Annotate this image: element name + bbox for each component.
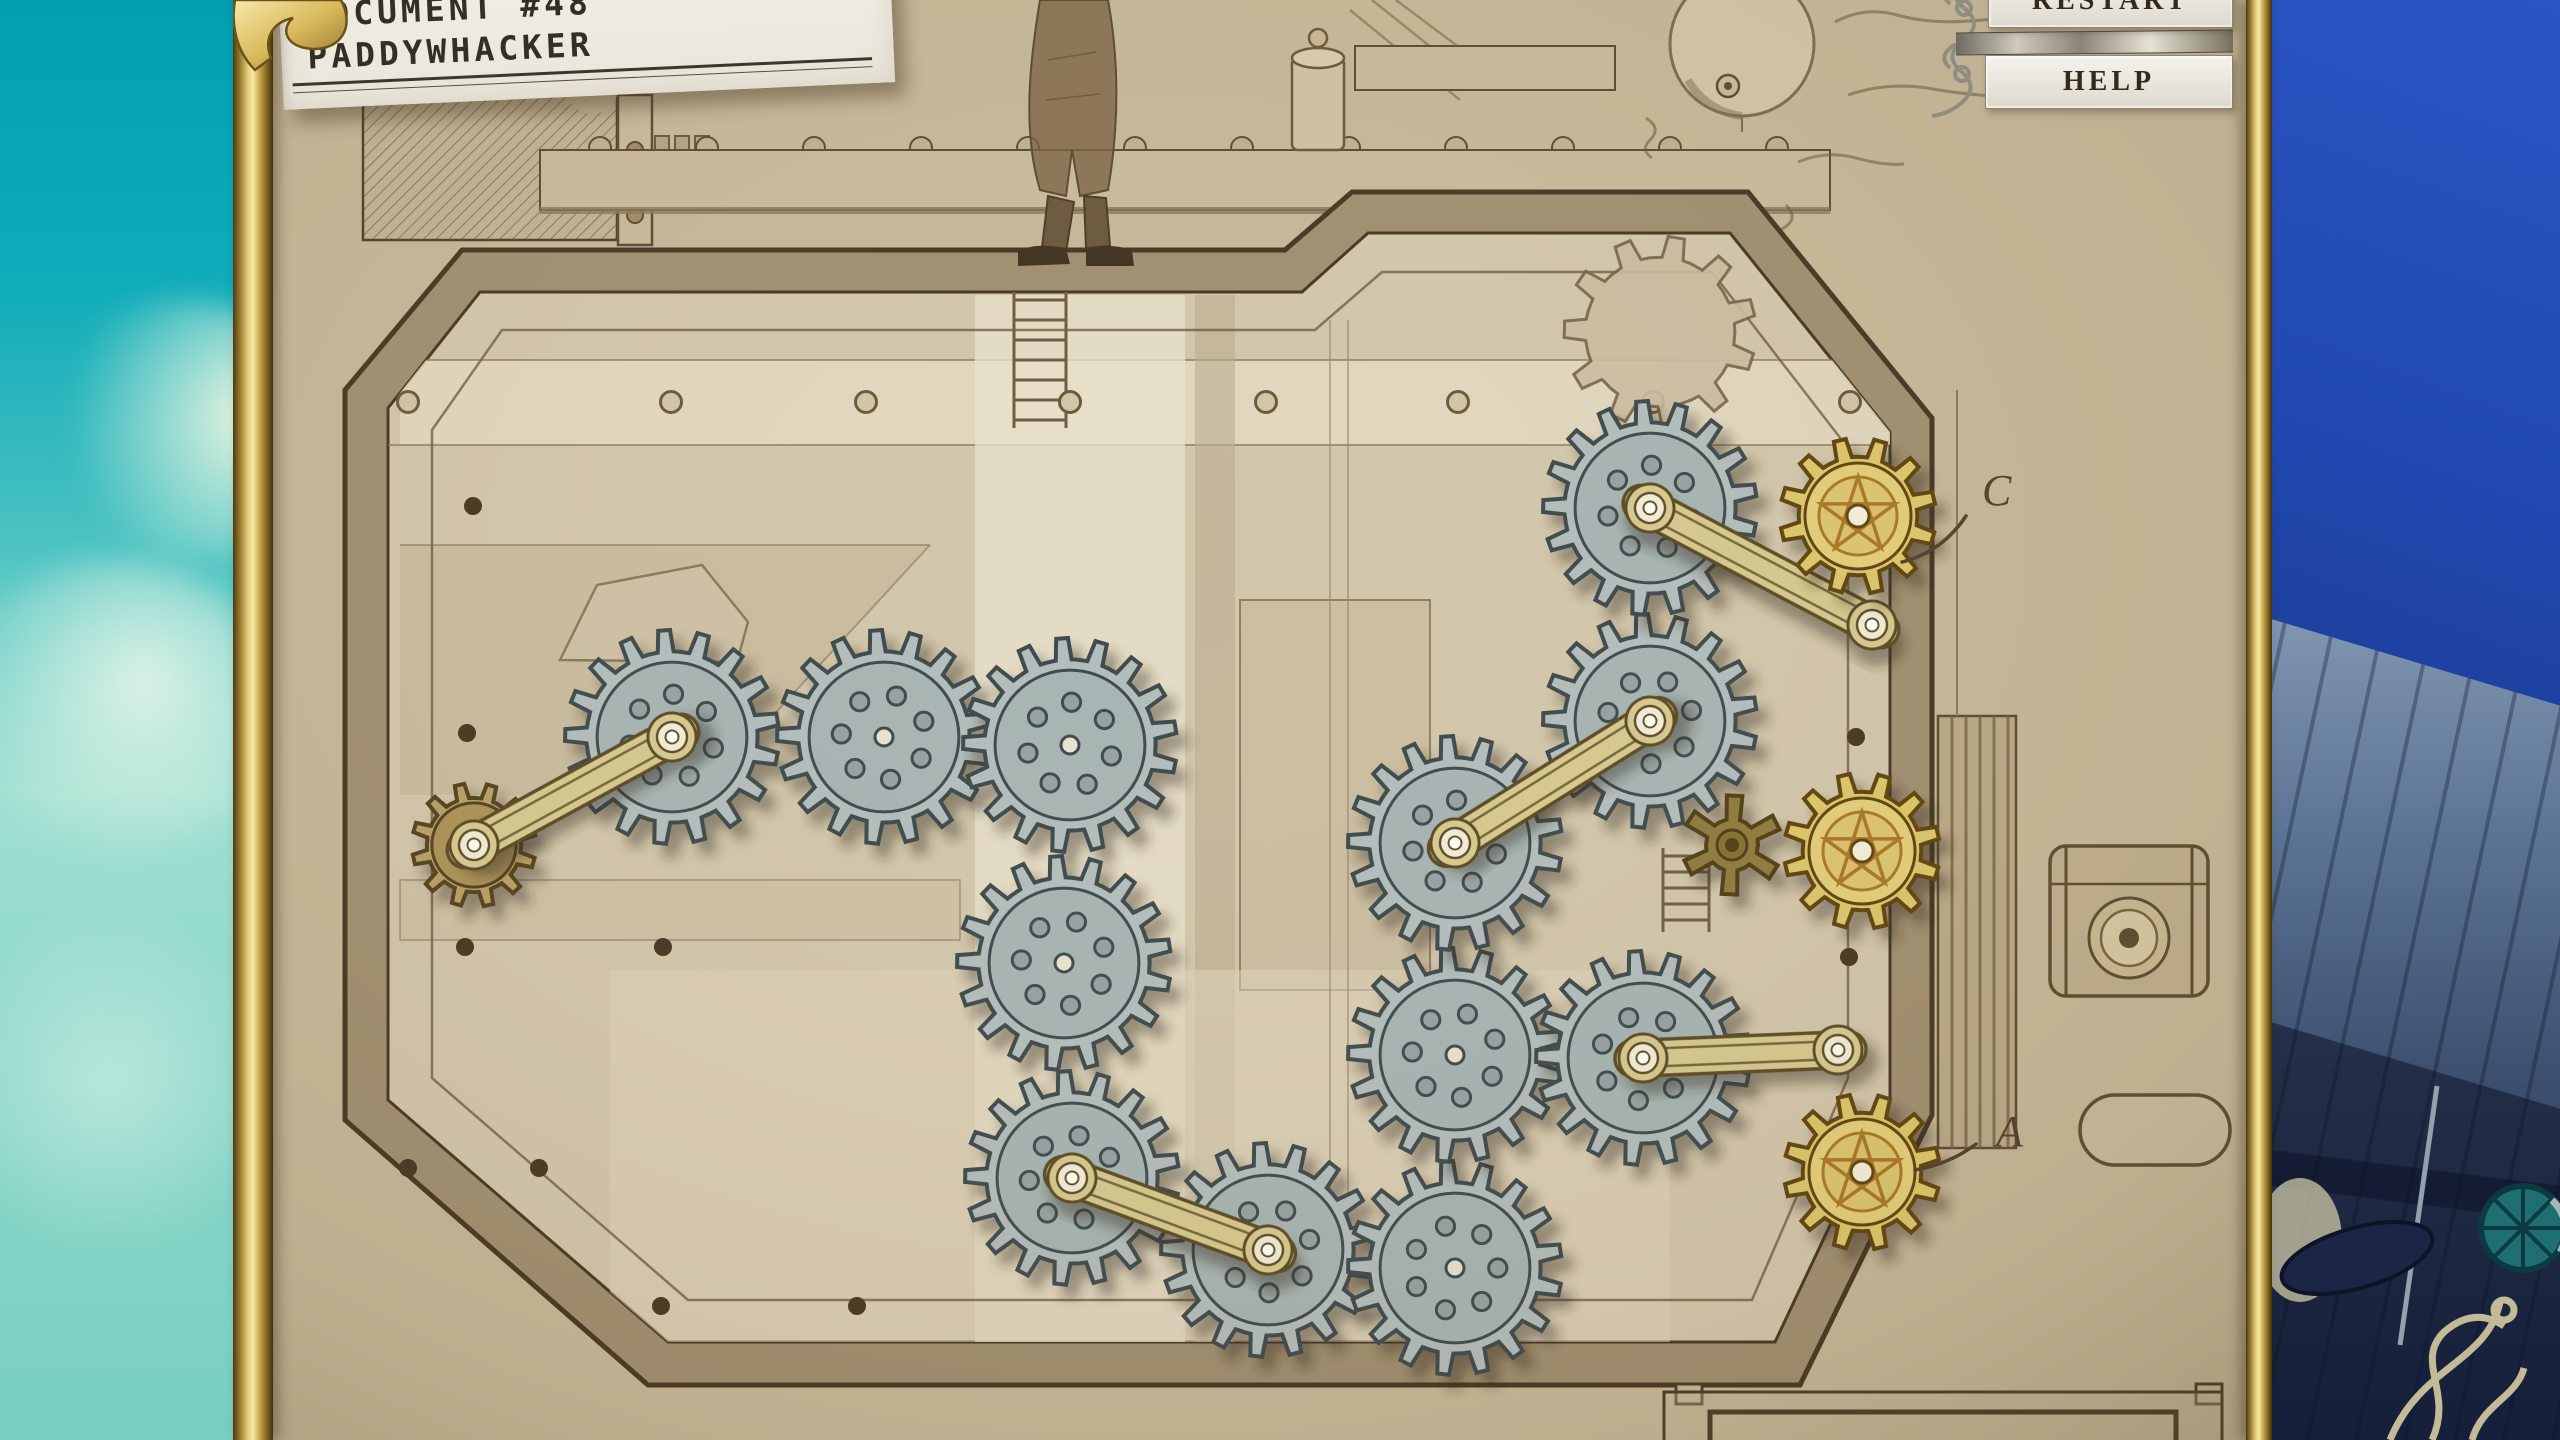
solution-tray[interactable]: [1664, 1384, 2222, 1440]
ship-background: [2272, 0, 2560, 1440]
help-button[interactable]: HELP: [1985, 55, 2233, 109]
ship-details: [2272, 0, 2560, 1440]
sky-background: [0, 0, 237, 1440]
etching-pill-outline: [2080, 1095, 2230, 1165]
scroll-ornament: [2390, 1300, 2524, 1440]
cloud: [30, 300, 237, 560]
gold-gear-a[interactable]: [1785, 1095, 1939, 1249]
etching-chest: [2050, 846, 2208, 996]
svg-text:A: A: [1993, 1107, 2024, 1156]
gold-gear-mid[interactable]: [1785, 774, 1939, 928]
gold-frame-left: [233, 0, 273, 1440]
cloud: [0, 560, 237, 860]
gold-frame-corner-curl: [233, 0, 363, 80]
svg-text:C: C: [1982, 466, 2012, 515]
gold-gear-c[interactable]: [1781, 439, 1935, 593]
metal-divider-bar: [1956, 30, 2233, 56]
filigree-ornament-icon: [1898, 0, 1993, 124]
gold-frame-right: [2246, 0, 2272, 1440]
hud: RESTART HELP: [1898, 0, 2278, 124]
cloud: [0, 900, 237, 1260]
restart-button[interactable]: RESTART: [1988, 0, 2233, 28]
puzzle-scene: CA: [0, 0, 2560, 1440]
game-screen: CA: [0, 0, 2560, 1440]
